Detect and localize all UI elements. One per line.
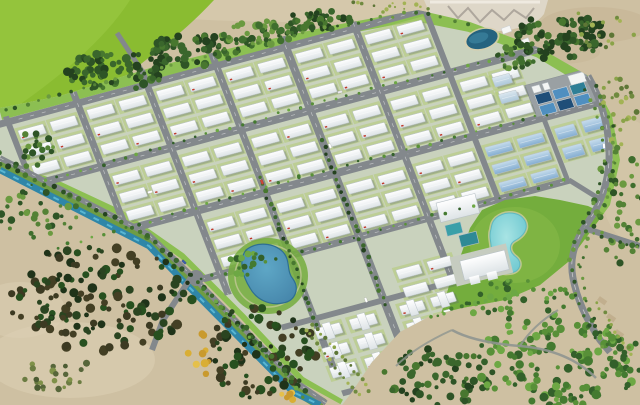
- tree: [123, 312, 131, 320]
- tree: [440, 378, 446, 384]
- roadside-tree: [287, 249, 291, 253]
- tree: [619, 142, 623, 146]
- tree: [178, 298, 182, 302]
- tree: [617, 77, 622, 82]
- tree: [492, 308, 497, 313]
- tree: [303, 21, 308, 26]
- roadside-tree: [138, 230, 143, 235]
- roadside-tree: [323, 25, 327, 29]
- tree: [279, 380, 288, 389]
- roadside-tree: [44, 179, 47, 182]
- roadside-tree: [328, 357, 332, 361]
- tree: [45, 135, 52, 142]
- roadside-tree: [611, 124, 615, 128]
- roadside-tree: [458, 208, 461, 211]
- tree: [613, 350, 618, 355]
- roadside-tree: [200, 278, 203, 281]
- tree: [574, 322, 581, 329]
- roadside-tree: [290, 31, 294, 35]
- tree: [410, 397, 415, 402]
- roadside-tree: [277, 222, 281, 226]
- tree: [604, 328, 609, 333]
- roadside-tree: [253, 189, 256, 192]
- roadside-tree: [277, 111, 280, 114]
- tree: [556, 365, 560, 369]
- tree: [34, 281, 41, 288]
- tree: [100, 58, 104, 62]
- roadside-tree: [322, 170, 325, 173]
- roadside-tree: [596, 190, 600, 194]
- tree: [399, 387, 406, 394]
- tree: [502, 44, 509, 51]
- tree: [63, 222, 67, 226]
- tree: [92, 50, 101, 59]
- roadside-tree: [611, 141, 615, 145]
- tree: [165, 307, 174, 316]
- tree: [356, 1, 360, 5]
- tree: [506, 279, 510, 283]
- roadside-tree: [585, 300, 588, 303]
- tree: [131, 52, 136, 57]
- tree: [486, 310, 492, 316]
- tree: [78, 291, 84, 297]
- tree: [517, 33, 521, 37]
- roadside-tree: [290, 380, 294, 384]
- tree: [254, 252, 258, 256]
- roadside-tree: [180, 61, 183, 64]
- tree: [114, 332, 121, 339]
- roadside-tree: [534, 115, 536, 117]
- roadside-tree: [603, 159, 606, 162]
- tree: [619, 86, 624, 91]
- tree: [151, 312, 159, 320]
- tree: [601, 100, 606, 105]
- tree: [584, 40, 588, 44]
- roadside-tree: [263, 188, 268, 193]
- tree: [83, 360, 90, 367]
- tree: [112, 243, 122, 253]
- tree: [328, 8, 335, 15]
- roadside-tree: [237, 266, 240, 269]
- tree: [116, 60, 121, 65]
- roadside-tree: [273, 215, 277, 219]
- roadside-tree: [334, 178, 338, 182]
- roadside-tree: [216, 129, 219, 132]
- tree: [553, 289, 557, 293]
- tree: [63, 246, 72, 255]
- tree: [592, 330, 599, 337]
- tree: [470, 309, 477, 316]
- roadside-tree: [89, 168, 91, 170]
- tree: [22, 377, 27, 382]
- roadside-tree: [302, 289, 306, 293]
- roadside-tree: [269, 202, 274, 207]
- tree: [542, 288, 546, 292]
- tree: [146, 322, 153, 329]
- tree: [60, 315, 66, 321]
- tree: [83, 295, 90, 302]
- tree: [131, 318, 136, 323]
- roadside-tree: [429, 315, 433, 319]
- tree: [171, 264, 176, 269]
- roadside-tree: [577, 302, 580, 305]
- roadside-tree: [136, 72, 140, 76]
- tree: [217, 347, 222, 352]
- tree: [227, 35, 232, 40]
- tree: [55, 254, 63, 262]
- tree: [616, 344, 624, 352]
- tree: [82, 271, 89, 278]
- tree: [226, 381, 231, 386]
- roadside-tree: [581, 277, 584, 280]
- roadside-tree: [607, 115, 610, 118]
- tree: [505, 322, 512, 329]
- roadside-tree: [611, 169, 615, 173]
- roadside-tree: [601, 149, 604, 152]
- roadside-tree: [247, 44, 250, 47]
- roadside-tree: [599, 334, 602, 337]
- tree: [228, 256, 234, 262]
- roadside-tree: [327, 158, 331, 162]
- tree: [272, 375, 279, 382]
- tree: [540, 393, 549, 402]
- tree: [494, 361, 501, 368]
- tree: [607, 39, 611, 43]
- roadside-tree: [349, 364, 352, 367]
- tree: [412, 362, 420, 370]
- roadside-tree: [358, 92, 361, 95]
- tree: [38, 380, 43, 385]
- tree: [245, 273, 249, 277]
- tree: [414, 2, 418, 6]
- roadside-tree: [361, 377, 365, 381]
- tree: [42, 209, 48, 215]
- roadside-tree: [346, 164, 349, 167]
- roadside-tree: [13, 106, 17, 110]
- roadside-tree: [546, 114, 549, 117]
- tree: [133, 307, 142, 316]
- roadside-tree: [581, 220, 586, 225]
- roadside-tree: [265, 186, 268, 189]
- tree: [121, 303, 125, 307]
- tree: [267, 40, 275, 48]
- roadside-tree: [232, 315, 236, 319]
- roadside-tree: [439, 15, 442, 18]
- tree: [448, 358, 456, 366]
- roadside-tree: [289, 255, 292, 258]
- tree: [136, 52, 141, 57]
- roadside-tree: [405, 148, 407, 150]
- roadside-tree: [323, 99, 325, 101]
- roadside-tree: [477, 62, 479, 64]
- tree: [424, 381, 431, 388]
- tree: [529, 41, 534, 46]
- roadside-tree: [277, 227, 282, 232]
- tree: [559, 18, 567, 26]
- roadside-tree: [42, 183, 46, 187]
- roadside-tree: [137, 223, 141, 227]
- tree: [39, 155, 45, 161]
- tree: [79, 367, 84, 372]
- tree: [239, 272, 244, 277]
- tree: [346, 15, 352, 21]
- tree: [517, 41, 524, 48]
- tree: [583, 356, 593, 366]
- tree: [422, 354, 429, 361]
- tree: [258, 304, 266, 312]
- tree: [614, 182, 619, 187]
- roadside-tree: [449, 307, 453, 311]
- tree: [10, 310, 15, 315]
- roadside-tree: [218, 199, 221, 202]
- tree: [619, 99, 624, 104]
- roadside-tree: [571, 247, 576, 252]
- tree: [193, 361, 200, 368]
- tree: [542, 49, 550, 57]
- tree: [318, 21, 323, 26]
- tree: [62, 386, 66, 390]
- roadside-tree: [228, 312, 233, 317]
- roadside-tree: [440, 139, 443, 142]
- tree: [78, 380, 82, 384]
- tree: [260, 28, 265, 33]
- roadside-tree: [472, 204, 475, 207]
- roadside-tree: [583, 287, 586, 290]
- tree: [55, 277, 60, 282]
- tree: [120, 341, 129, 350]
- tree: [72, 74, 78, 80]
- tree: [579, 394, 583, 398]
- tree: [252, 350, 261, 359]
- tree: [314, 10, 320, 16]
- roadside-tree: [182, 208, 186, 212]
- tree: [115, 68, 122, 75]
- roadside-tree: [426, 12, 430, 16]
- tree: [53, 371, 59, 377]
- roadside-tree: [194, 136, 197, 139]
- roadside-tree: [477, 301, 480, 304]
- roadside-tree: [572, 240, 576, 244]
- roadside-tree: [391, 16, 394, 19]
- roadside-tree: [335, 98, 338, 101]
- roadside-tree: [587, 323, 591, 327]
- roadside-tree: [160, 66, 164, 70]
- roadside-tree: [600, 126, 604, 130]
- tree: [433, 375, 438, 380]
- roadside-tree: [134, 153, 138, 157]
- tree: [624, 96, 629, 101]
- tree: [52, 378, 58, 384]
- tree: [5, 196, 12, 203]
- tree: [271, 23, 278, 30]
- roadside-tree: [114, 77, 118, 81]
- roadside-tree: [278, 368, 281, 371]
- tree: [221, 330, 230, 339]
- tree: [620, 356, 626, 362]
- roadside-tree: [252, 339, 257, 344]
- tree: [289, 360, 298, 369]
- roadside-tree: [600, 235, 604, 239]
- tree: [117, 323, 124, 330]
- roadside-tree: [124, 156, 127, 159]
- roadside-tree: [629, 353, 632, 356]
- roadside-tree: [67, 193, 72, 198]
- tree: [601, 20, 605, 24]
- roadside-tree: [277, 34, 280, 37]
- tree: [264, 376, 272, 384]
- roadside-tree: [103, 212, 108, 217]
- roadside-tree: [15, 168, 20, 173]
- tree: [36, 222, 41, 227]
- roadside-tree: [336, 25, 339, 28]
- tree: [98, 320, 106, 328]
- tree: [525, 61, 531, 67]
- roadside-tree: [610, 323, 613, 326]
- tree: [152, 65, 160, 73]
- roadside-tree: [66, 241, 70, 245]
- roadside-tree: [57, 247, 60, 250]
- tree: [579, 32, 584, 37]
- tree: [156, 77, 162, 83]
- roadside-tree: [613, 151, 616, 154]
- tree: [18, 201, 23, 206]
- roadside-tree: [607, 188, 611, 192]
- tree: [8, 216, 16, 224]
- roadside-tree: [228, 127, 231, 130]
- tree: [139, 339, 146, 346]
- tree: [117, 318, 122, 323]
- roadside-tree: [585, 237, 589, 241]
- roadside-tree: [577, 263, 580, 266]
- tree: [90, 320, 97, 327]
- roadside-tree: [224, 272, 228, 276]
- roadside-tree: [357, 160, 359, 162]
- tree: [248, 395, 252, 399]
- tree: [13, 164, 17, 168]
- roadside-tree: [392, 225, 394, 227]
- roadside-tree: [269, 38, 272, 41]
- tree: [484, 381, 491, 388]
- tree: [53, 213, 60, 220]
- tree: [111, 274, 117, 280]
- tree: [100, 249, 104, 253]
- roadside-tree: [324, 145, 328, 149]
- tree: [252, 255, 257, 260]
- roadside-tree: [355, 228, 360, 233]
- tree: [531, 287, 536, 292]
- tree: [527, 350, 533, 356]
- tree: [67, 377, 72, 382]
- tree: [289, 333, 294, 338]
- tree: [71, 262, 77, 268]
- roadside-tree: [537, 48, 540, 51]
- roadside-tree: [367, 389, 371, 393]
- roadside-tree: [329, 342, 332, 345]
- tree: [55, 386, 61, 392]
- roadside-tree: [617, 335, 620, 338]
- tree: [51, 145, 55, 149]
- tree: [242, 264, 248, 270]
- tree: [531, 59, 536, 64]
- roadside-tree: [350, 217, 354, 221]
- tree: [517, 372, 526, 381]
- tree: [45, 223, 52, 230]
- tree: [600, 371, 605, 376]
- roadside-tree: [37, 99, 40, 102]
- tree: [49, 316, 53, 320]
- tree: [544, 40, 548, 44]
- roadside-tree: [618, 240, 622, 244]
- roadside-tree: [331, 363, 334, 366]
- roadside-tree: [310, 173, 313, 176]
- tree: [185, 281, 189, 285]
- roadside-tree: [94, 208, 99, 213]
- roadside-tree: [323, 336, 327, 340]
- tree: [388, 5, 391, 8]
- roadside-tree: [346, 382, 349, 385]
- tree: [404, 392, 409, 397]
- roadside-tree: [613, 331, 616, 334]
- tree: [30, 365, 36, 371]
- roadside-tree: [594, 336, 597, 339]
- roadside-tree: [297, 176, 301, 180]
- tree: [157, 285, 163, 291]
- tree: [444, 355, 449, 360]
- roadside-tree: [196, 280, 200, 284]
- tree: [503, 65, 507, 69]
- tree: [617, 209, 623, 215]
- roadside-tree: [318, 349, 321, 352]
- tree: [560, 396, 568, 404]
- tree: [548, 291, 554, 297]
- roadside-tree: [609, 178, 614, 183]
- roadside-tree: [264, 260, 268, 264]
- tree: [199, 350, 207, 358]
- roadside-tree: [113, 159, 116, 162]
- tree: [515, 293, 519, 297]
- tree: [44, 279, 50, 285]
- tree: [575, 353, 582, 360]
- roadside-tree: [464, 135, 467, 138]
- roadside-tree: [201, 286, 206, 291]
- tree: [577, 12, 581, 16]
- tree: [109, 80, 114, 85]
- roadside-tree: [406, 79, 409, 82]
- tree: [234, 37, 239, 42]
- roadside-tree: [324, 153, 327, 156]
- tree: [628, 156, 635, 163]
- tree: [550, 50, 555, 55]
- roadside-tree: [587, 307, 592, 312]
- roadside-tree: [608, 319, 611, 322]
- roadside-tree: [311, 102, 314, 105]
- tree: [60, 214, 64, 218]
- tree: [105, 343, 113, 351]
- roadside-tree: [598, 94, 603, 99]
- roadside-tree: [503, 297, 507, 301]
- roadside-tree: [454, 68, 456, 70]
- tree: [621, 222, 627, 228]
- roadside-tree: [350, 386, 354, 390]
- roadside-tree: [195, 207, 197, 209]
- tree: [23, 148, 29, 154]
- roadside-tree: [130, 226, 134, 230]
- tree: [33, 130, 40, 137]
- roadside-tree: [102, 163, 106, 167]
- tree: [403, 8, 405, 10]
- tree: [567, 53, 574, 60]
- tree: [492, 385, 498, 391]
